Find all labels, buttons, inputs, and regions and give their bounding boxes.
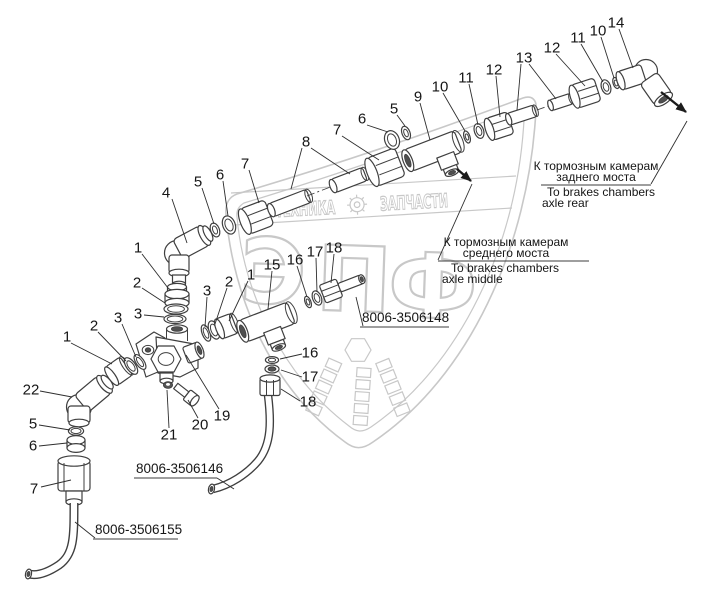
- callout-leader-line: [39, 425, 70, 430]
- thrust-ring-6: [220, 214, 238, 236]
- callout-leader-line: [496, 76, 500, 117]
- union-nut-18-lower: [260, 375, 280, 396]
- callout-number: 2: [225, 274, 233, 291]
- washer-16-lower: [265, 357, 278, 364]
- callout-number: 7: [333, 122, 341, 139]
- callout-number: 18: [326, 240, 343, 257]
- valve-body-19: [136, 325, 206, 384]
- callout-number: 1: [63, 329, 71, 346]
- callout-number: 11: [570, 30, 586, 47]
- elbow-fitting-14: [614, 60, 674, 110]
- union-nut-7-bottom: [58, 456, 90, 505]
- callout-number: 5: [29, 416, 37, 433]
- part-number-label: 8006-3506155: [95, 522, 182, 537]
- union-nut-12b: [567, 78, 601, 110]
- callout-number: 6: [216, 167, 224, 184]
- callout-number: 22: [23, 382, 40, 399]
- bolt-20: [172, 381, 201, 407]
- seal-ring-11b: [599, 79, 612, 96]
- parts-diagram: ТЕХНИКА ЗАПЧАСТИ Э П Ф: [0, 0, 713, 600]
- callout-leader-line: [469, 84, 478, 125]
- note-line-ru: заднего моста: [556, 170, 636, 184]
- elbow-fitting-22: [67, 371, 117, 426]
- seal-ring-5-bottom: [68, 427, 83, 435]
- callout-leader-line: [205, 297, 207, 327]
- callout-leader-line: [556, 54, 585, 86]
- callout-leader-line: [142, 288, 165, 303]
- callout-number: 4: [162, 185, 170, 202]
- callout-number: 1: [247, 267, 255, 284]
- callout-number: 17: [307, 244, 324, 261]
- callout-number: 14: [608, 15, 625, 32]
- callout-leader-line: [281, 389, 300, 401]
- watermark-band-right-text: ЗАПЧАСТИ: [380, 190, 449, 216]
- callout-leader-line: [142, 254, 168, 288]
- callout-leader-line: [281, 370, 302, 377]
- callout-leader-line: [601, 37, 614, 78]
- callout-number: 10: [432, 79, 449, 96]
- part-number-label: 8006-3506146: [136, 461, 223, 476]
- callout-number: 18: [300, 394, 317, 411]
- callout-number: 7: [241, 156, 249, 173]
- callout-leader-line: [342, 136, 379, 160]
- callout-leader-line: [202, 188, 214, 224]
- callout-leader-line: [517, 64, 521, 110]
- cap-nut-6b: [382, 128, 402, 151]
- note-line-ru: среднего моста: [463, 246, 550, 260]
- callout-number: 12: [544, 40, 561, 57]
- callout-number: 15: [264, 257, 281, 274]
- callout-number: 5: [390, 101, 398, 118]
- connector-tube-13a: [504, 104, 539, 126]
- callout-leader-line: [291, 148, 302, 189]
- part-number-leader: [75, 522, 95, 538]
- ring-3-top: [164, 314, 186, 323]
- callout-number: 3: [203, 283, 211, 300]
- seal-ring-17-lower: [265, 365, 279, 373]
- callout-number: 6: [29, 438, 37, 455]
- connector-tube-8b: [328, 166, 371, 194]
- callout-number: 5: [194, 174, 202, 191]
- callout-leader-line: [619, 29, 633, 68]
- seal-ring-5b: [400, 125, 412, 141]
- note-line-en: axle rear: [542, 196, 589, 210]
- callout-number: 19: [214, 408, 231, 425]
- pipe-8006-3506155: [25, 503, 74, 579]
- callout-number: 21: [161, 427, 178, 444]
- callout-leader-line: [280, 354, 302, 359]
- part-number-label: 8006-3506148: [362, 310, 449, 325]
- callout-leader-line: [529, 64, 556, 99]
- ring-2-top: [164, 304, 188, 314]
- callout-number: 3: [114, 310, 122, 327]
- callout-leader-line: [581, 44, 603, 82]
- gear-icon: [347, 194, 368, 215]
- callout-leader-line: [122, 324, 136, 357]
- note-line-en: axle middle: [442, 272, 503, 286]
- callout-number: 1: [134, 240, 142, 257]
- callout-leader-line: [397, 115, 405, 126]
- callout-leader-line: [98, 332, 126, 361]
- callout-number: 17: [302, 369, 319, 386]
- callout-leader-line: [39, 443, 67, 446]
- callout-number: 11: [458, 70, 474, 87]
- cap-nut-6-bottom: [67, 436, 85, 453]
- note-leader-line: [651, 121, 687, 184]
- callout-number: 2: [133, 275, 141, 292]
- callout-number: 6: [358, 111, 366, 128]
- callout-leader-line: [367, 125, 388, 132]
- callout-number: 9: [414, 89, 422, 106]
- callout-leader-line: [144, 315, 164, 317]
- elbow-fitting-4: [165, 222, 217, 287]
- callout-number: 20: [192, 417, 209, 434]
- callout-leader-line: [71, 343, 112, 364]
- callout-number: 16: [302, 345, 319, 362]
- callout-number: 7: [30, 481, 38, 498]
- callout-number: 12: [486, 62, 503, 79]
- callout-leader-line: [40, 391, 72, 397]
- callout-number: 10: [590, 23, 607, 40]
- callout-number: 8: [302, 134, 310, 151]
- lock-ring-21: [163, 382, 172, 389]
- callout-number: 3: [134, 306, 142, 323]
- callout-number: 16: [287, 252, 304, 269]
- callout-number: 13: [516, 50, 533, 67]
- watermark-wheat: [306, 339, 410, 426]
- callout-leader-line: [167, 390, 169, 428]
- callout-leader-line: [249, 170, 259, 203]
- callout-number: 2: [90, 318, 98, 335]
